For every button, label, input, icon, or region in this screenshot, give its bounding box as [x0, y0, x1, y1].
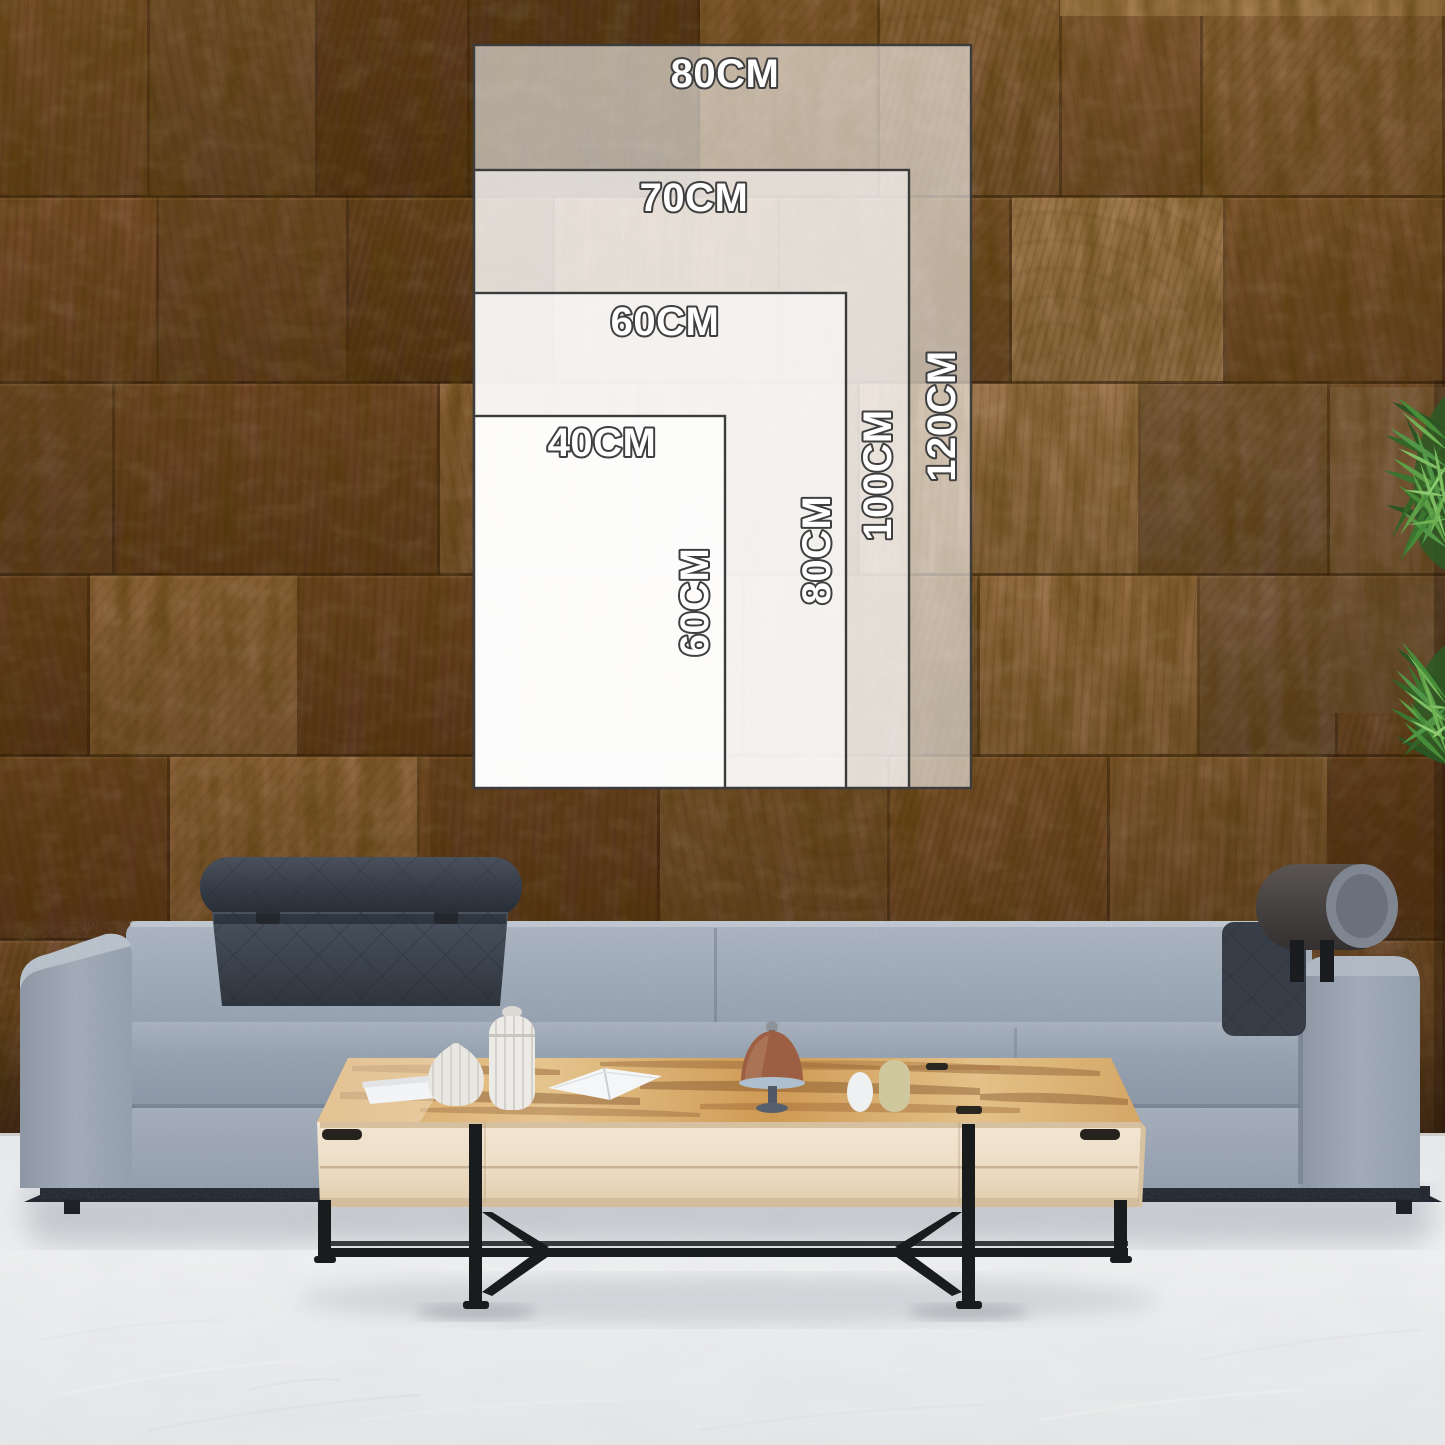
svg-text:40CM: 40CM	[548, 421, 657, 465]
svg-text:100CM: 100CM	[856, 409, 900, 540]
svg-text:70CM: 70CM	[640, 176, 749, 220]
svg-text:60CM: 60CM	[611, 300, 720, 344]
svg-text:60CM: 60CM	[673, 548, 717, 657]
svg-text:80CM: 80CM	[671, 52, 780, 96]
svg-text:120CM: 120CM	[920, 350, 964, 481]
svg-text:80CM: 80CM	[795, 496, 839, 605]
